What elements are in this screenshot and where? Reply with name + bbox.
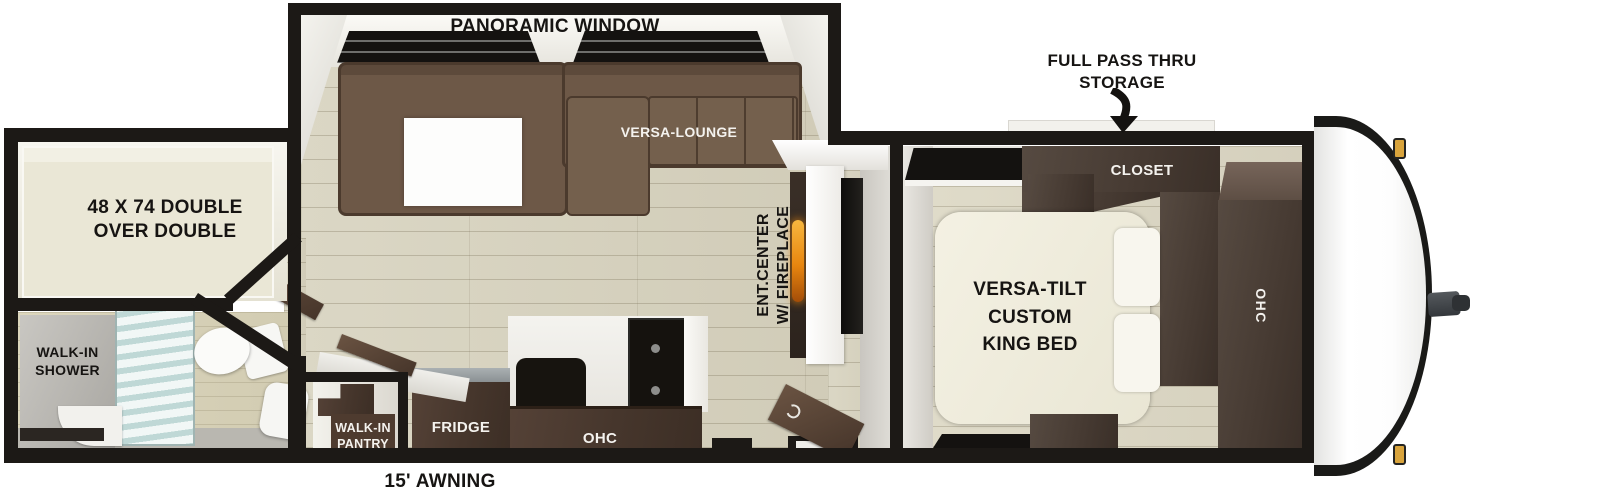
ent-center-label-text: ENT.CENTER W/ FIREPLACE: [754, 199, 795, 331]
versa-lounge-chaise: [566, 96, 650, 216]
shower-ledge: [20, 428, 104, 441]
stove: [516, 358, 586, 412]
slideout-wall-right: [828, 3, 841, 143]
awning-label: 15' AWNING: [360, 470, 520, 494]
closet-label: CLOSET: [1092, 161, 1192, 180]
marker-light: [1393, 444, 1406, 465]
closet-text: CLOSET: [1092, 161, 1192, 180]
bedroom-wall-band-left: [903, 146, 933, 448]
tv: [841, 178, 863, 334]
ent-center-cabinet: [806, 166, 844, 364]
hitch-coupler: [1452, 295, 1470, 311]
pass-thru-label: FULL PASS THRU STORAGE: [1022, 50, 1222, 94]
kitchen-drawer-unit: [628, 318, 686, 416]
closet-column: [1160, 192, 1220, 386]
kitchen-wall-column: [684, 316, 708, 412]
slideout-wall-top: [288, 3, 841, 15]
awning-text: 15' AWNING: [360, 470, 520, 494]
pantry-wall-right: [398, 372, 408, 448]
ent-center-label: ENT.CENTER W/ FIREPLACE: [754, 199, 792, 331]
fridge-label: FRIDGE: [412, 418, 510, 437]
floorplan: PANORAMIC WINDOW VERSA-LOUNGE ENT.CENTER…: [0, 0, 1600, 495]
fridge-text: FRIDGE: [412, 418, 510, 437]
bedroom-ohc-top: [1218, 162, 1302, 204]
bedroom-window-bottom: [933, 434, 1045, 448]
bedroom-ohc-text: OHC: [1251, 266, 1269, 346]
drawer-knob-icon: [651, 386, 660, 395]
versa-lounge-label: VERSA-LOUNGE: [604, 124, 754, 142]
arrow-down-icon: [1098, 88, 1144, 134]
panoramic-window-left: [337, 31, 540, 63]
bedroom-ohc-text-wrap: OHC: [1251, 266, 1269, 346]
dinette-table: [404, 118, 522, 206]
bunk-label: 48 X 74 DOUBLE OVER DOUBLE: [40, 196, 290, 245]
kitchen-ohc-text: OHC: [540, 429, 660, 448]
bedroom-ohc-label: OHC: [1249, 266, 1269, 346]
entry-door-handle-icon: [784, 402, 803, 421]
walk-in-shower-glass: [115, 302, 195, 446]
bottom-wall: [288, 448, 1316, 463]
bedside-cabinet: [1028, 174, 1094, 214]
king-bed-label: VERSA-TILT CUSTOM KING BED: [930, 276, 1130, 359]
marker-light: [1393, 138, 1406, 159]
bedroom-wall-left: [890, 143, 903, 463]
pantry-wall-top: [302, 372, 408, 382]
shower-label: WALK-IN SHOWER: [20, 344, 115, 380]
bedroom-wall-face: [860, 146, 890, 448]
bunk-wall-right: [287, 128, 300, 240]
rear-wall-top: [4, 128, 300, 142]
drawer-knob-icon: [651, 344, 660, 353]
bed-foot-cabinet: [1030, 414, 1118, 450]
rear-wall-left: [4, 128, 18, 463]
versa-lounge-text: VERSA-LOUNGE: [604, 124, 754, 142]
kitchen-ohc-label: OHC: [540, 429, 660, 448]
front-cap: [1314, 116, 1432, 476]
bath-wall-right: [293, 356, 306, 452]
panoramic-window-right: [573, 31, 769, 63]
rear-wall-bottom: [4, 448, 300, 463]
